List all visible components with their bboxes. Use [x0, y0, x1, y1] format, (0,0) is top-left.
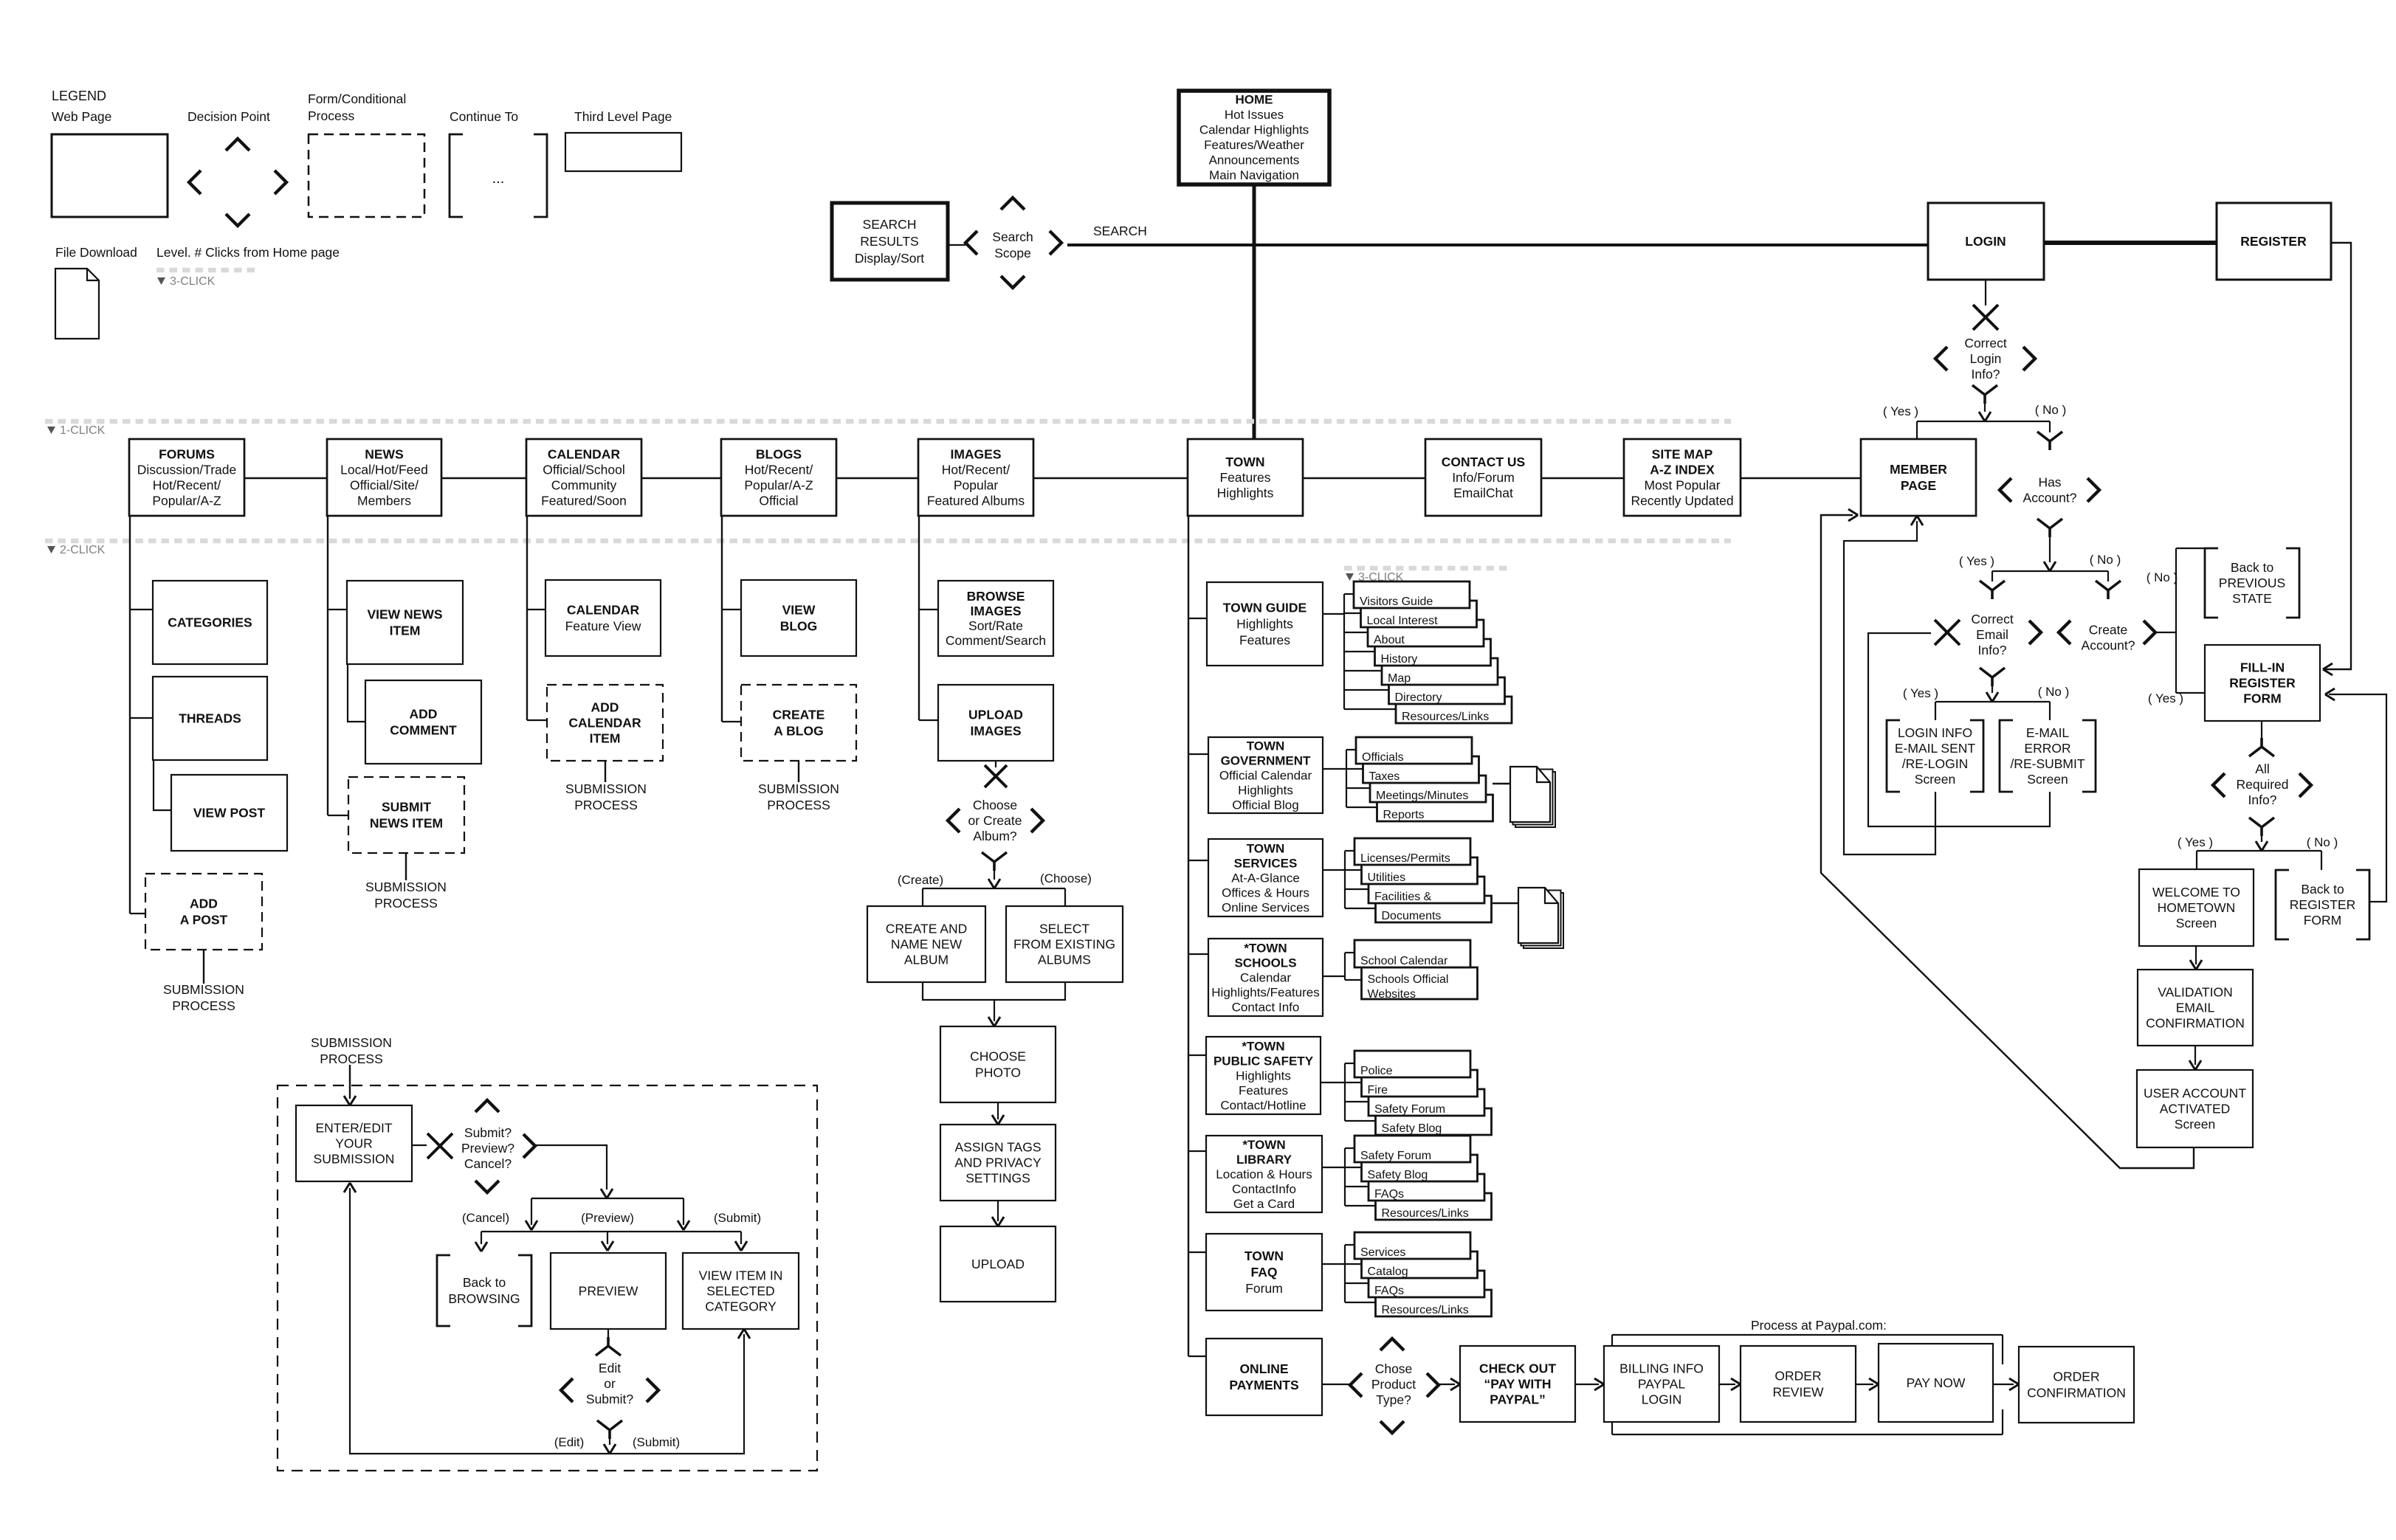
svg-text:Resources/Links: Resources/Links	[1382, 1207, 1469, 1220]
svg-text:VIEW: VIEW	[782, 603, 816, 618]
svg-text:CHECK OUT: CHECK OUT	[1479, 1361, 1556, 1376]
svg-text:BLOG: BLOG	[780, 619, 818, 634]
svg-text:ContactInfo: ContactInfo	[1232, 1182, 1296, 1196]
svg-text:PUBLIC SAFETY: PUBLIC SAFETY	[1214, 1054, 1314, 1068]
svg-text:FORUMS: FORUMS	[159, 447, 215, 462]
svg-text:FAQ: FAQ	[1251, 1265, 1278, 1280]
svg-text:LOGIN INFO: LOGIN INFO	[1898, 725, 1972, 740]
svg-text:/RE-SUBMIT: /RE-SUBMIT	[2010, 756, 2085, 771]
svg-text:Popular: Popular	[954, 478, 998, 493]
svg-text:Feature View: Feature View	[565, 619, 641, 634]
svg-text:Utilities: Utilities	[1368, 871, 1406, 884]
svg-text:VIEW POST: VIEW POST	[193, 806, 266, 821]
svg-text:Main Navigation: Main Navigation	[1209, 168, 1299, 182]
svg-text:Featured Albums: Featured Albums	[927, 494, 1025, 508]
svg-text:Email: Email	[1976, 627, 2008, 642]
svg-text:PROCESS: PROCESS	[374, 896, 438, 911]
svg-text:FILL-IN: FILL-IN	[2240, 660, 2285, 675]
svg-text:Back to: Back to	[2231, 560, 2273, 575]
svg-text:Safety Forum: Safety Forum	[1374, 1103, 1445, 1116]
svg-text:MEMBER: MEMBER	[1890, 462, 1947, 477]
svg-text:ALBUMS: ALBUMS	[1038, 953, 1091, 967]
svg-text:Local/Hot/Feed: Local/Hot/Feed	[340, 463, 428, 477]
svg-text:Info?: Info?	[1972, 367, 2000, 381]
svg-text:CONTACT US: CONTACT US	[1442, 455, 1525, 469]
svg-text:Account?: Account?	[2023, 491, 2077, 505]
svg-text:All: All	[2255, 762, 2269, 776]
svg-text:Resources/Links: Resources/Links	[1382, 1304, 1469, 1316]
svg-text:(Choose): (Choose)	[1040, 871, 1092, 885]
svg-text:EmailChat: EmailChat	[1453, 486, 1513, 500]
svg-text:REGISTER: REGISTER	[2229, 676, 2296, 691]
svg-text:FROM EXISTING: FROM EXISTING	[1013, 937, 1115, 952]
svg-text:(Edit): (Edit)	[554, 1435, 585, 1449]
svg-text:PROCESS: PROCESS	[172, 998, 235, 1013]
svg-text:Taxes: Taxes	[1369, 770, 1400, 783]
svg-text:UPLOAD: UPLOAD	[968, 708, 1023, 722]
svg-text:Officials: Officials	[1362, 751, 1404, 764]
svg-text:Features: Features	[1239, 1084, 1288, 1098]
svg-text:A BLOG: A BLOG	[774, 724, 823, 739]
svg-text:Create: Create	[2089, 623, 2128, 638]
svg-text:Comment/Search: Comment/Search	[946, 633, 1046, 648]
svg-text:VIEW NEWS: VIEW NEWS	[367, 607, 442, 622]
svg-text:CONFIRMATION: CONFIRMATION	[2027, 1386, 2126, 1401]
svg-text:NAME NEW: NAME NEW	[891, 937, 963, 952]
svg-text:FAQs: FAQs	[1374, 1285, 1404, 1297]
svg-text:SERVICES: SERVICES	[1234, 857, 1298, 871]
svg-text:Popular/A-Z: Popular/A-Z	[744, 478, 813, 493]
svg-text:Decision Point: Decision Point	[187, 109, 270, 124]
svg-text:Catalog: Catalog	[1368, 1266, 1408, 1278]
svg-text:PREVIOUS: PREVIOUS	[2219, 576, 2285, 590]
svg-text:( No ): ( No )	[2090, 553, 2121, 567]
svg-text:PHOTO: PHOTO	[975, 1066, 1021, 1080]
svg-text:Hot/Recent/: Hot/Recent/	[153, 478, 221, 493]
svg-text:Edit: Edit	[599, 1361, 621, 1375]
svg-text:E-MAIL: E-MAIL	[2026, 725, 2070, 740]
svg-text:LEGEND: LEGEND	[52, 89, 106, 103]
svg-text:Local Interest: Local Interest	[1367, 615, 1439, 627]
svg-text:PAYPAL: PAYPAL	[1638, 1377, 1685, 1392]
svg-text:CALENDAR: CALENDAR	[568, 716, 641, 731]
svg-text:TOWN: TOWN	[1245, 1249, 1284, 1263]
svg-text:ORDER: ORDER	[1774, 1369, 1821, 1384]
svg-text:Product: Product	[1371, 1377, 1416, 1392]
svg-text:Official Blog: Official Blog	[1232, 798, 1298, 812]
svg-text:ADD: ADD	[410, 707, 438, 722]
svg-text:Highlights: Highlights	[1236, 617, 1293, 632]
svg-text:COMMENT: COMMENT	[390, 723, 457, 738]
svg-text:IMAGES: IMAGES	[950, 447, 1001, 462]
svg-text:Screen: Screen	[2175, 1117, 2215, 1132]
svg-text:/RE-LOGIN: /RE-LOGIN	[1902, 756, 1968, 771]
svg-text:Safety Blog: Safety Blog	[1382, 1122, 1442, 1135]
svg-text:Web Page: Web Page	[52, 109, 111, 124]
svg-text:Discussion/Trade: Discussion/Trade	[137, 463, 237, 477]
svg-text:Official Calendar: Official Calendar	[1219, 769, 1312, 783]
svg-text:PAYPAL”: PAYPAL”	[1490, 1392, 1546, 1407]
svg-text:Online Services: Online Services	[1222, 901, 1309, 915]
svg-text:CALENDAR: CALENDAR	[567, 603, 640, 618]
svg-text:Scope: Scope	[994, 246, 1031, 260]
svg-text:REVIEW: REVIEW	[1772, 1385, 1824, 1400]
svg-text:Safety Blog: Safety Blog	[1368, 1169, 1428, 1181]
svg-text:...: ...	[492, 170, 505, 187]
svg-text:USER ACCOUNT: USER ACCOUNT	[2144, 1086, 2246, 1101]
svg-text:CHOOSE: CHOOSE	[970, 1049, 1026, 1064]
svg-text:VALIDATION: VALIDATION	[2158, 985, 2232, 1000]
svg-text:CONFIRMATION: CONFIRMATION	[2146, 1016, 2245, 1031]
svg-text:*TOWN: *TOWN	[1242, 1138, 1285, 1152]
svg-text:LIBRARY: LIBRARY	[1236, 1153, 1292, 1167]
svg-text:Map: Map	[1388, 672, 1411, 685]
svg-text:Choose: Choose	[973, 798, 1017, 812]
svg-text:Contact/Hotline: Contact/Hotline	[1220, 1099, 1306, 1113]
svg-text:SCHOOLS: SCHOOLS	[1234, 956, 1296, 970]
svg-text:Account?: Account?	[2082, 638, 2135, 653]
svg-text:ORDER: ORDER	[2053, 1370, 2099, 1384]
svg-text:SEARCH: SEARCH	[1093, 224, 1147, 238]
svg-text:Documents: Documents	[1382, 910, 1442, 922]
svg-text:Community: Community	[551, 478, 617, 493]
svg-text:ADD: ADD	[591, 700, 619, 715]
svg-text:Screen: Screen	[2027, 772, 2068, 787]
svg-text:Back to: Back to	[463, 1275, 506, 1290]
svg-text:( Yes ): ( Yes )	[1883, 404, 1918, 418]
svg-text:TOWN GUIDE: TOWN GUIDE	[1223, 601, 1307, 615]
svg-text:CATEGORY: CATEGORY	[705, 1299, 777, 1314]
svg-text:SUBMISSION: SUBMISSION	[758, 781, 839, 796]
svg-text:or Create: or Create	[968, 813, 1022, 828]
svg-text:Submit?: Submit?	[464, 1125, 512, 1140]
svg-text:School Calendar: School Calendar	[1360, 955, 1448, 967]
svg-text:HOME: HOME	[1236, 93, 1273, 107]
svg-text:TOWN: TOWN	[1225, 455, 1264, 469]
svg-text:E-MAIL SENT: E-MAIL SENT	[1895, 741, 1976, 756]
svg-text:BLOGS: BLOGS	[756, 447, 802, 462]
svg-text:ENTER/EDIT: ENTER/EDIT	[315, 1121, 392, 1136]
svg-text:“PAY WITH: “PAY WITH	[1484, 1377, 1551, 1392]
svg-text:ADD: ADD	[190, 897, 218, 911]
svg-text:Official/Site/: Official/Site/	[350, 478, 419, 493]
svg-text:PAGE: PAGE	[1901, 478, 1936, 493]
svg-text:Forum: Forum	[1245, 1281, 1283, 1296]
svg-text:SITE MAP: SITE MAP	[1652, 447, 1713, 462]
svg-text:SEARCH: SEARCH	[863, 217, 917, 232]
svg-text:( Yes ): ( Yes )	[1959, 554, 1994, 568]
svg-text:Correct: Correct	[1971, 612, 2014, 626]
svg-text:Continue To: Continue To	[450, 109, 518, 124]
svg-text:AND PRIVACY: AND PRIVACY	[954, 1156, 1042, 1170]
svg-text:Safety Forum: Safety Forum	[1360, 1150, 1431, 1162]
svg-text:A POST: A POST	[180, 913, 228, 928]
svg-text:At-A-Glance: At-A-Glance	[1231, 871, 1300, 885]
svg-text:Highlights: Highlights	[1236, 1069, 1291, 1083]
svg-text:Features: Features	[1239, 633, 1290, 648]
svg-text:Highlights: Highlights	[1238, 784, 1293, 798]
svg-text:or: or	[604, 1376, 616, 1391]
svg-text:Level. # Clicks from Home page: Level. # Clicks from Home page	[156, 245, 340, 260]
svg-text:Directory: Directory	[1395, 691, 1442, 704]
svg-text:HOMETOWN: HOMETOWN	[2158, 900, 2236, 915]
svg-text:THREADS: THREADS	[179, 711, 241, 726]
svg-text:Members: Members	[357, 494, 411, 508]
svg-text:IMAGES: IMAGES	[970, 604, 1021, 618]
svg-text:Meetings/Minutes: Meetings/Minutes	[1376, 790, 1468, 802]
svg-text:Hot/Recent/: Hot/Recent/	[942, 463, 1011, 477]
svg-text:Services: Services	[1360, 1246, 1405, 1259]
svg-text:LOGIN: LOGIN	[1642, 1392, 1681, 1407]
svg-text:TOWN: TOWN	[1247, 739, 1285, 753]
svg-text:Featured/Soon: Featured/Soon	[541, 494, 627, 508]
svg-text:Correct: Correct	[1964, 336, 2007, 351]
svg-text:Facilities &: Facilities &	[1374, 891, 1432, 903]
svg-text:GOVERNMENT: GOVERNMENT	[1221, 754, 1311, 768]
svg-text:Popular/A-Z: Popular/A-Z	[152, 494, 221, 508]
svg-text:TOWN: TOWN	[1247, 842, 1285, 856]
svg-text:Back to: Back to	[2301, 882, 2344, 897]
svg-text:FORM: FORM	[2304, 913, 2342, 928]
svg-text:Reports: Reports	[1383, 809, 1425, 821]
svg-text:BROWSING: BROWSING	[448, 1291, 520, 1306]
svg-text:( Yes ): ( Yes )	[2178, 835, 2213, 849]
svg-text:REGISTER: REGISTER	[2240, 234, 2307, 249]
svg-text:PROCESS: PROCESS	[767, 798, 830, 812]
svg-text:About: About	[1374, 634, 1405, 646]
svg-text:(Create): (Create)	[898, 873, 943, 887]
svg-text:ERROR: ERROR	[2024, 741, 2070, 756]
svg-text:Schools Official: Schools Official	[1368, 973, 1449, 986]
svg-text:Location & Hours: Location & Hours	[1216, 1167, 1312, 1181]
svg-text:PROCESS: PROCESS	[320, 1052, 383, 1066]
svg-text:SETTINGS: SETTINGS	[965, 1171, 1030, 1186]
svg-text:Offices & Hours: Offices & Hours	[1222, 886, 1309, 900]
svg-text:Official/School: Official/School	[543, 463, 625, 477]
svg-text:SUBMISSION: SUBMISSION	[565, 781, 647, 796]
svg-text:Resources/Links: Resources/Links	[1402, 711, 1489, 723]
svg-text:History: History	[1381, 653, 1418, 666]
svg-text:STATE: STATE	[2232, 591, 2272, 606]
svg-text:Chose: Chose	[1375, 1361, 1413, 1376]
svg-text:1-CLICK: 1-CLICK	[60, 424, 106, 437]
svg-text:SUBMISSION: SUBMISSION	[163, 982, 244, 997]
svg-text:Contact Info: Contact Info	[1232, 1001, 1300, 1015]
svg-text:IMAGES: IMAGES	[970, 724, 1021, 739]
svg-text:(Preview): (Preview)	[581, 1211, 634, 1225]
svg-text:SELECTED: SELECTED	[706, 1284, 774, 1299]
svg-text:CATEGORIES: CATEGORIES	[168, 615, 252, 630]
svg-text:( Yes ): ( Yes )	[2148, 691, 2183, 705]
svg-text:Get a Card: Get a Card	[1233, 1197, 1295, 1211]
svg-text:Features: Features	[1219, 470, 1270, 485]
svg-text:SELECT: SELECT	[1039, 922, 1089, 936]
svg-text:( No ): ( No )	[2035, 403, 2067, 417]
svg-text:PAY NOW: PAY NOW	[1907, 1375, 1966, 1390]
svg-text:PAYMENTS: PAYMENTS	[1229, 1378, 1298, 1392]
svg-text:(Submit): (Submit)	[714, 1211, 761, 1225]
svg-text:2-CLICK: 2-CLICK	[60, 544, 106, 556]
svg-text:ITEM: ITEM	[590, 731, 621, 746]
svg-text:Login: Login	[1970, 351, 2002, 366]
svg-text:Info?: Info?	[2248, 793, 2277, 807]
svg-text:PROCESS: PROCESS	[574, 798, 638, 812]
svg-text:ONLINE: ONLINE	[1239, 1361, 1288, 1376]
svg-text:Info?: Info?	[1978, 643, 2007, 657]
svg-text:Highlights: Highlights	[1217, 486, 1274, 500]
svg-text:Sort/Rate: Sort/Rate	[968, 618, 1023, 633]
svg-text:ACTIVATED: ACTIVATED	[2160, 1102, 2231, 1116]
svg-text:Display/Sort: Display/Sort	[855, 251, 924, 266]
svg-text:Hot/Recent/: Hot/Recent/	[745, 463, 813, 477]
svg-text:Most Popular: Most Popular	[1644, 478, 1720, 493]
svg-text:CALENDAR: CALENDAR	[548, 447, 621, 462]
svg-text:(Cancel): (Cancel)	[462, 1211, 509, 1225]
svg-text:ITEM: ITEM	[390, 624, 421, 638]
svg-text:CREATE: CREATE	[773, 708, 825, 722]
svg-text:NEWS: NEWS	[365, 447, 404, 462]
svg-text:CREATE AND: CREATE AND	[886, 922, 968, 936]
svg-text:Type?: Type?	[1376, 1392, 1411, 1407]
svg-text:3-CLICK: 3-CLICK	[170, 275, 216, 288]
svg-text:Calendar Highlights: Calendar Highlights	[1199, 123, 1309, 137]
svg-text:Police: Police	[1360, 1065, 1393, 1077]
svg-text:Preview?: Preview?	[461, 1141, 514, 1156]
svg-text:A-Z INDEX: A-Z INDEX	[1650, 463, 1715, 477]
svg-text:Submit?: Submit?	[586, 1392, 633, 1406]
svg-text:( Yes ): ( Yes )	[1903, 686, 1938, 700]
svg-text:*TOWN: *TOWN	[1244, 942, 1287, 956]
svg-text:Third Level Page: Third Level Page	[574, 109, 672, 124]
svg-text:Highlights/Features: Highlights/Features	[1211, 986, 1319, 1000]
svg-text:Info/Forum: Info/Forum	[1452, 470, 1515, 485]
svg-text:SUBMISSION: SUBMISSION	[365, 880, 447, 894]
svg-text:Features/Weather: Features/Weather	[1204, 138, 1304, 152]
svg-text:YOUR: YOUR	[335, 1136, 373, 1151]
svg-text:File Download: File Download	[55, 245, 137, 260]
svg-text:REGISTER: REGISTER	[2290, 897, 2355, 912]
svg-text:Hot Issues: Hot Issues	[1225, 108, 1284, 122]
svg-text:Screen: Screen	[2176, 916, 2217, 930]
svg-text:( No ): ( No )	[2038, 685, 2070, 699]
svg-text:Process: Process	[308, 108, 354, 123]
svg-text:VIEW ITEM IN: VIEW ITEM IN	[699, 1268, 783, 1283]
svg-text:Screen: Screen	[1915, 772, 1955, 787]
svg-text:SUBMISSION: SUBMISSION	[314, 1152, 395, 1167]
svg-text:Licenses/Permits: Licenses/Permits	[1360, 852, 1450, 865]
svg-text:Form/Conditional: Form/Conditional	[308, 91, 406, 106]
svg-text:( No ): ( No )	[2147, 570, 2178, 584]
svg-text:LOGIN: LOGIN	[1965, 234, 2006, 249]
svg-text:Has: Has	[2038, 475, 2061, 490]
svg-text:EMAIL: EMAIL	[2176, 1001, 2215, 1015]
svg-text:UPLOAD: UPLOAD	[971, 1257, 1025, 1271]
svg-text:Process at Paypal.com:: Process at Paypal.com:	[1751, 1318, 1887, 1333]
svg-text:Album?: Album?	[973, 829, 1017, 843]
svg-text:Recently Updated: Recently Updated	[1631, 494, 1733, 508]
svg-text:SUBMISSION: SUBMISSION	[311, 1035, 392, 1050]
svg-text:ALBUM: ALBUM	[904, 953, 949, 967]
svg-text:Websites: Websites	[1368, 988, 1416, 1001]
svg-text:Announcements: Announcements	[1209, 153, 1300, 168]
svg-text:FORM: FORM	[2243, 691, 2282, 706]
svg-text:WELCOME TO: WELCOME TO	[2152, 885, 2240, 900]
svg-text:Calendar: Calendar	[1240, 971, 1291, 985]
svg-text:( No ): ( No )	[2307, 835, 2338, 849]
svg-text:Cancel?: Cancel?	[464, 1156, 512, 1171]
svg-text:Search: Search	[992, 229, 1033, 244]
svg-text:(Submit): (Submit)	[633, 1435, 680, 1449]
svg-text:*TOWN: *TOWN	[1242, 1040, 1284, 1054]
svg-text:Official: Official	[759, 494, 798, 508]
svg-text:Required: Required	[2236, 777, 2288, 792]
svg-text:ASSIGN TAGS: ASSIGN TAGS	[954, 1140, 1041, 1155]
svg-text:Visitors Guide: Visitors Guide	[1360, 595, 1433, 608]
svg-text:BILLING INFO: BILLING INFO	[1619, 1361, 1704, 1376]
svg-text:Fire: Fire	[1368, 1084, 1388, 1097]
svg-text:FAQs: FAQs	[1374, 1188, 1404, 1201]
svg-text:RESULTS: RESULTS	[860, 234, 918, 249]
svg-text:NEWS ITEM: NEWS ITEM	[370, 816, 443, 831]
svg-text:BROWSE: BROWSE	[967, 589, 1025, 604]
svg-text:PREVIEW: PREVIEW	[579, 1284, 638, 1299]
svg-text:SUBMIT: SUBMIT	[382, 800, 431, 815]
